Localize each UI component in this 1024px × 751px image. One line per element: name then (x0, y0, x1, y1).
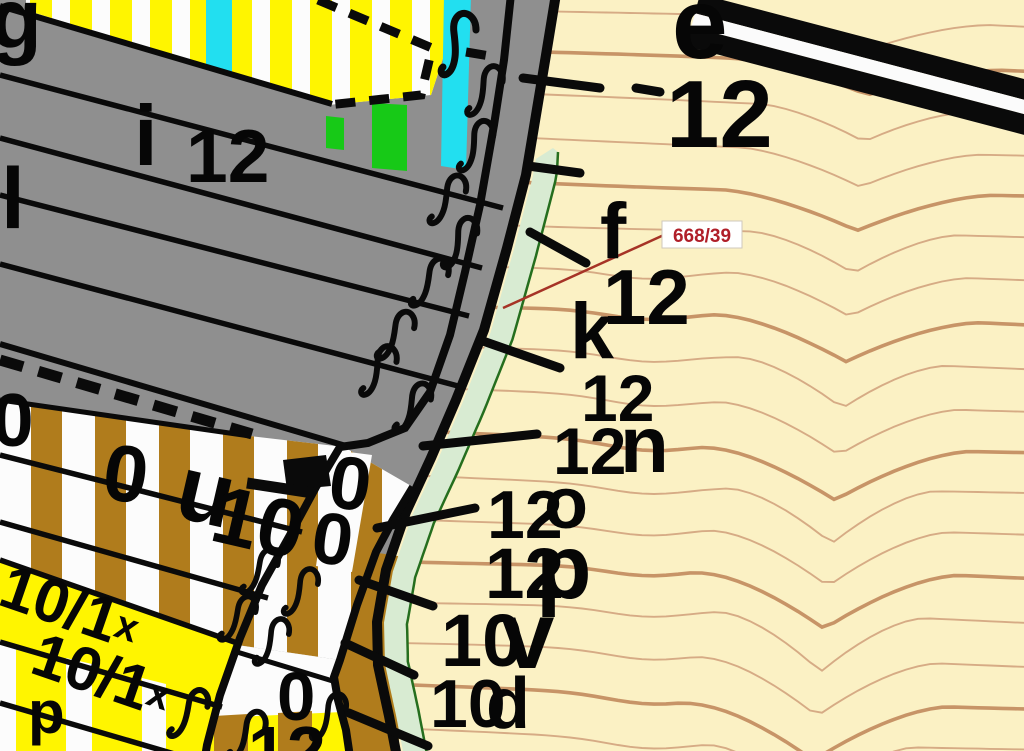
svg-text:n: n (620, 400, 669, 489)
svg-text:0: 0 (0, 378, 34, 462)
svg-text:668/39: 668/39 (673, 226, 731, 247)
svg-text:12: 12 (666, 61, 773, 168)
svg-text:12: 12 (603, 253, 690, 341)
svg-text:12: 12 (186, 114, 269, 198)
svg-text:p: p (28, 679, 65, 746)
svg-text:i: i (134, 89, 158, 184)
svg-text:d: d (486, 664, 530, 744)
svg-text:g: g (0, 0, 42, 67)
svg-text:l: l (1, 151, 25, 247)
svg-text:12: 12 (248, 712, 326, 751)
